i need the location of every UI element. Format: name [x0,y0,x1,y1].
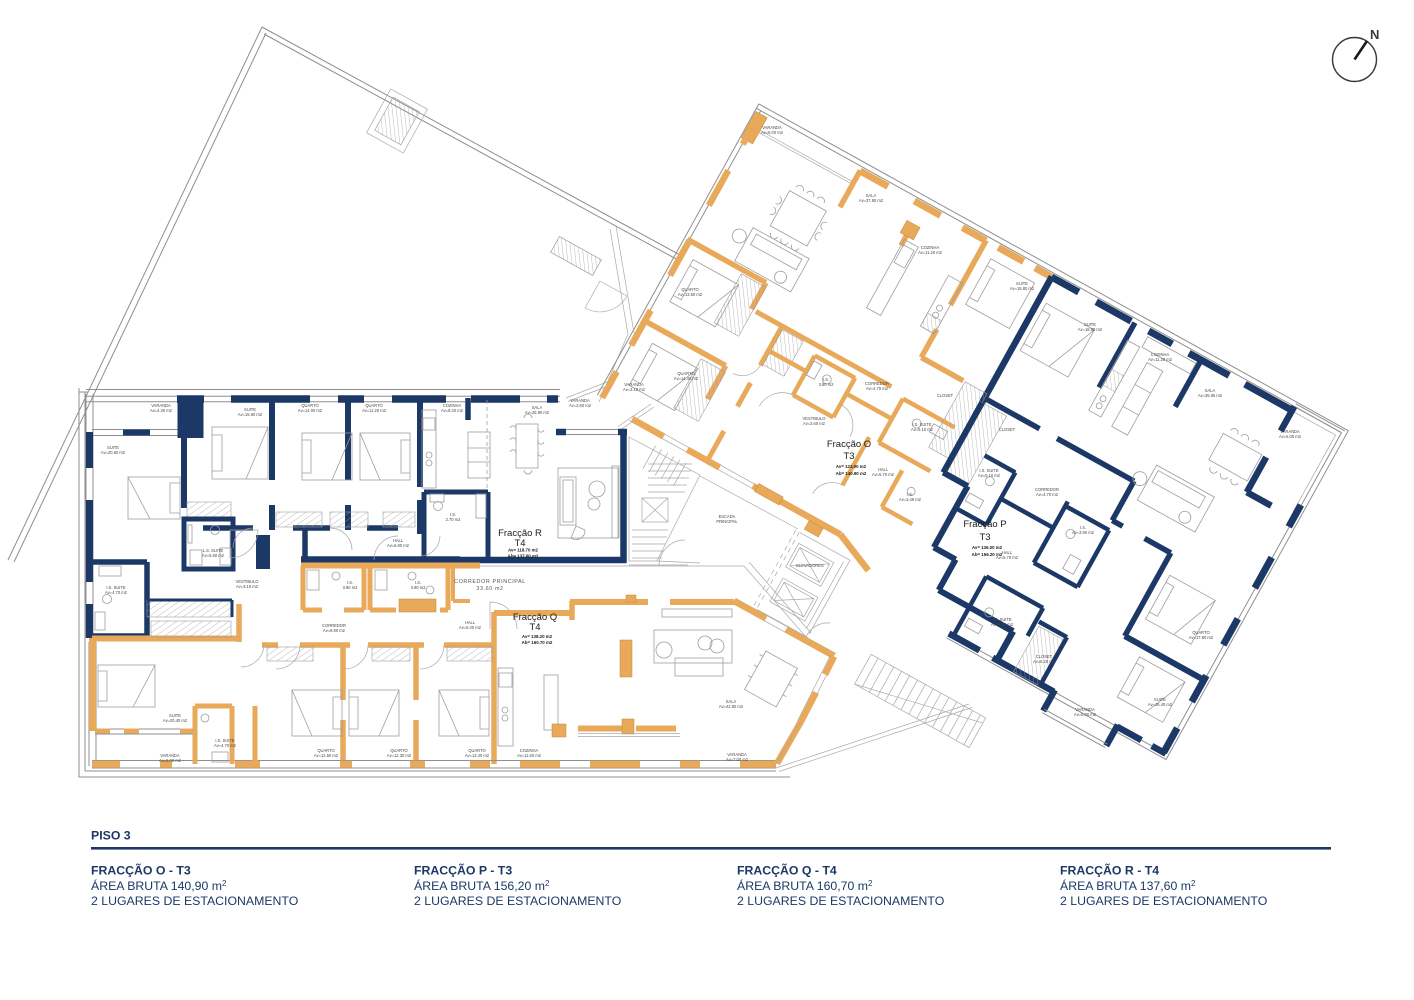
svg-text:Av=5.00 m2: Av=5.00 m2 [1279,434,1302,439]
svg-text:Av=11.20 m2: Av=11.20 m2 [918,250,943,255]
svg-text:3.80 m2: 3.80 m2 [819,382,835,387]
svg-text:Av=8.90 m2: Av=8.90 m2 [323,628,346,633]
svg-text:2 LUGARES DE ESTACIONAMENTO: 2 LUGARES DE ESTACIONAMENTO [737,894,944,908]
svg-text:3.80 m2: 3.80 m2 [343,585,359,590]
svg-text:Av=13.40 m2: Av=13.40 m2 [465,753,490,758]
svg-text:Fracção O: Fracção O [827,439,871,450]
svg-text:Av=3.10 m2: Av=3.10 m2 [623,387,646,392]
svg-text:Av=5.90 m2: Av=5.90 m2 [991,622,1014,627]
svg-text:3.90 m2: 3.90 m2 [411,585,427,590]
svg-text:Av=17.90 m2: Av=17.90 m2 [1189,635,1214,640]
svg-text:Av=5.40 m2: Av=5.40 m2 [459,625,482,630]
svg-text:ÁREA BRUTA 160,70 m2: ÁREA BRUTA 160,70 m2 [737,878,873,893]
svg-text:Av= 136.00 m2: Av= 136.00 m2 [972,545,1003,550]
svg-text:Av=3.10 m2: Av=3.10 m2 [236,584,259,589]
svg-text:PRINCIPAL: PRINCIPAL [716,519,738,524]
svg-text:33.60 m2: 33.60 m2 [476,586,503,592]
svg-text:Av=5.80 m2: Av=5.80 m2 [202,553,225,558]
svg-text:Av=5.10 m2: Av=5.10 m2 [978,473,1001,478]
svg-text:FRACÇÃO Q - T4: FRACÇÃO Q - T4 [737,863,837,878]
svg-text:CORREDOR PRINCIPAL: CORREDOR PRINCIPAL [454,579,526,585]
svg-text:Av=18.80 m2: Av=18.80 m2 [1078,327,1103,332]
svg-text:ÁREA BRUTA 140,90 m2: ÁREA BRUTA 140,90 m2 [91,878,227,893]
svg-text:Av=37.80 m2: Av=37.80 m2 [859,198,884,203]
svg-text:Av=14.40 m2: Av=14.40 m2 [674,376,699,381]
svg-text:ÁREA BRUTA 156,20 m2: ÁREA BRUTA 156,20 m2 [414,878,550,893]
svg-text:Av=5.00 m2: Av=5.00 m2 [761,130,784,135]
svg-text:Av= 123.00 m2: Av= 123.00 m2 [836,464,867,469]
svg-text:T4: T4 [529,622,540,633]
svg-text:CLOSET: CLOSET [937,393,954,398]
svg-text:Av=4.70 m2: Av=4.70 m2 [105,590,128,595]
svg-text:FRACÇÃO P - T3: FRACÇÃO P - T3 [414,863,512,878]
svg-text:Av=8.20 m2: Av=8.20 m2 [441,408,464,413]
svg-text:Av=11.20 m2: Av=11.20 m2 [362,408,387,413]
svg-text:ELEVADORES: ELEVADORES [796,563,824,568]
svg-text:Av=26.90 m2: Av=26.90 m2 [525,410,550,415]
svg-text:Av=15.60 m2: Av=15.60 m2 [238,412,263,417]
svg-text:T3: T3 [979,532,990,543]
svg-text:Av=3.60 m2: Av=3.60 m2 [803,421,826,426]
svg-text:CLOSET: CLOSET [999,427,1016,432]
svg-text:Av=5.70 m2: Av=5.70 m2 [996,555,1019,560]
svg-text:Av=12.50 m2: Av=12.50 m2 [314,753,339,758]
svg-text:Av=4.70 m2: Av=4.70 m2 [214,743,237,748]
svg-text:Av=14.00 m2: Av=14.00 m2 [298,408,323,413]
svg-text:Av=11.50 m2: Av=11.50 m2 [517,753,542,758]
svg-text:Av=3.60 m2: Av=3.60 m2 [569,403,592,408]
svg-text:Av=4.70 m2: Av=4.70 m2 [866,386,889,391]
svg-text:Av=3.90 m2: Av=3.90 m2 [1072,530,1095,535]
svg-text:Av=12.30 m2: Av=12.30 m2 [387,753,412,758]
svg-text:Av= 118.70 m2: Av= 118.70 m2 [508,548,539,553]
svg-text:Av=35.95 m2: Av=35.95 m2 [1198,393,1223,398]
svg-text:Av= 138.20 m2: Av= 138.20 m2 [522,634,553,639]
svg-text:N: N [1370,27,1379,42]
svg-text:Av=5.00 m2: Av=5.00 m2 [159,758,182,763]
svg-text:2 LUGARES DE ESTACIONAMENTO: 2 LUGARES DE ESTACIONAMENTO [91,894,298,908]
svg-text:Av=42.80 m2: Av=42.80 m2 [719,704,744,709]
svg-text:2.70 m2: 2.70 m2 [446,517,462,522]
svg-text:2 LUGARES DE ESTACIONAMENTO: 2 LUGARES DE ESTACIONAMENTO [1060,894,1267,908]
svg-text:Av=13.50 m2: Av=13.50 m2 [678,292,703,297]
svg-text:Av=5.70 m2: Av=5.70 m2 [872,472,895,477]
svg-text:2 LUGARES DE ESTACIONAMENTO: 2 LUGARES DE ESTACIONAMENTO [414,894,621,908]
svg-text:Av=4.70 m2: Av=4.70 m2 [1036,492,1059,497]
svg-text:T3: T3 [843,451,854,462]
svg-text:Av=6.20 m2: Av=6.20 m2 [1033,659,1056,664]
svg-text:Ab= 137.60 m2: Ab= 137.60 m2 [508,554,539,559]
svg-text:Av=11.20 m2: Av=11.20 m2 [1148,357,1173,362]
svg-text:Fracção P: Fracção P [963,519,1006,530]
svg-text:Ab= 140.90 m2: Ab= 140.90 m2 [836,471,867,476]
svg-text:Av=16.40 m2: Av=16.40 m2 [1148,702,1173,707]
svg-text:FRACÇÃO R - T4: FRACÇÃO R - T4 [1060,863,1159,878]
svg-text:PISO 3: PISO 3 [91,829,131,843]
svg-text:Av=7.00 m2: Av=7.00 m2 [726,757,749,762]
svg-text:Av=20.60 m2: Av=20.60 m2 [101,450,126,455]
svg-text:Av=3.49 m2: Av=3.49 m2 [899,497,922,502]
svg-text:ÁREA BRUTA 137,60 m2: ÁREA BRUTA 137,60 m2 [1060,878,1196,893]
svg-text:Av=4.30 m2: Av=4.30 m2 [150,408,173,413]
svg-text:Av=20.40 m2: Av=20.40 m2 [163,718,188,723]
svg-text:Av=15.80 m2: Av=15.80 m2 [1010,286,1035,291]
svg-text:FRACÇÃO O - T3: FRACÇÃO O - T3 [91,863,191,878]
svg-text:Ab= 160.70 m2: Ab= 160.70 m2 [522,640,553,645]
svg-text:Av=5.00 m2: Av=5.00 m2 [1074,712,1097,717]
svg-text:Av=5.10 m2: Av=5.10 m2 [911,427,934,432]
svg-text:Av=6.90 m2: Av=6.90 m2 [387,543,410,548]
